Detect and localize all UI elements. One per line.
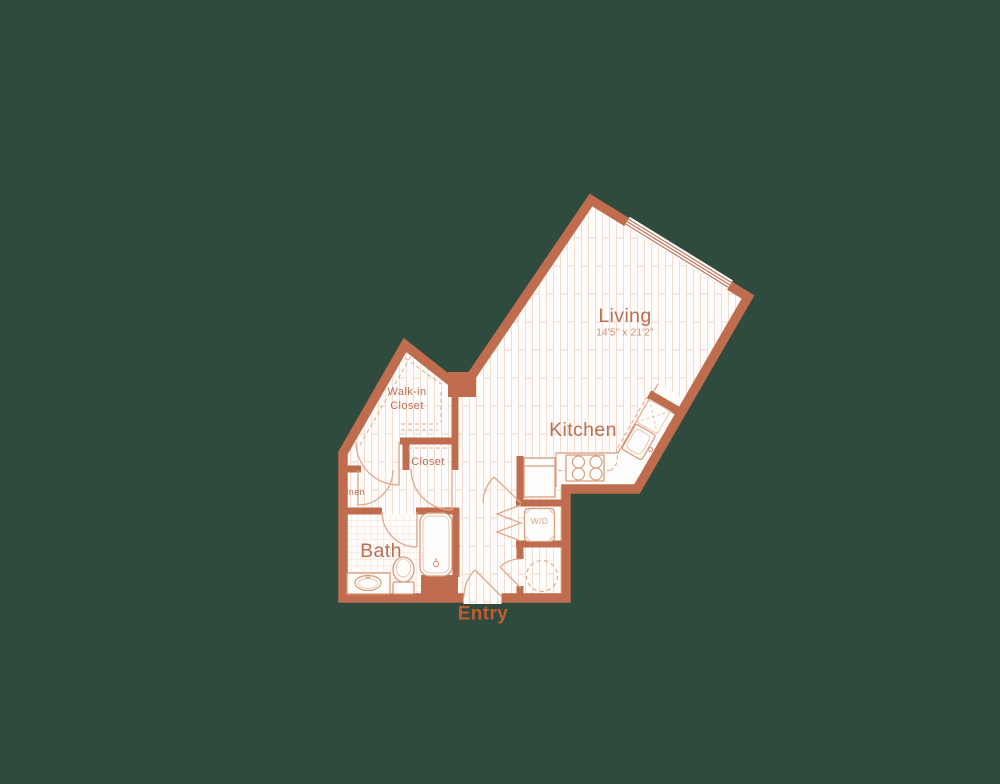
room-label-linen: Linen: [341, 487, 365, 497]
entry-label: Entry: [458, 604, 509, 625]
room-label-living: Living: [598, 305, 651, 327]
floor-plan-page: W/D: [0, 0, 1000, 784]
room-dimensions-living: 14'5" x 21'2": [596, 328, 654, 339]
bath-plumbing-wall: [421, 575, 458, 595]
washer-dryer-label: W/D: [531, 516, 549, 526]
refrigerator: [524, 458, 555, 497]
vanity-sink: [347, 573, 390, 594]
room-label-walkin-line2: Closet: [390, 400, 424, 412]
room-label-kitchen: Kitchen: [549, 419, 617, 441]
range: [566, 455, 604, 481]
washer-dryer: W/D: [525, 509, 555, 542]
bathtub: [420, 513, 452, 576]
room-label-bath: Bath: [360, 540, 402, 562]
room-label-closet: Closet: [411, 456, 445, 468]
entry-opening: [464, 592, 502, 604]
toilet: [393, 557, 414, 594]
floor-plan: W/D: [0, 0, 1000, 784]
room-label-walkin-line1: Walk-in: [387, 386, 426, 398]
